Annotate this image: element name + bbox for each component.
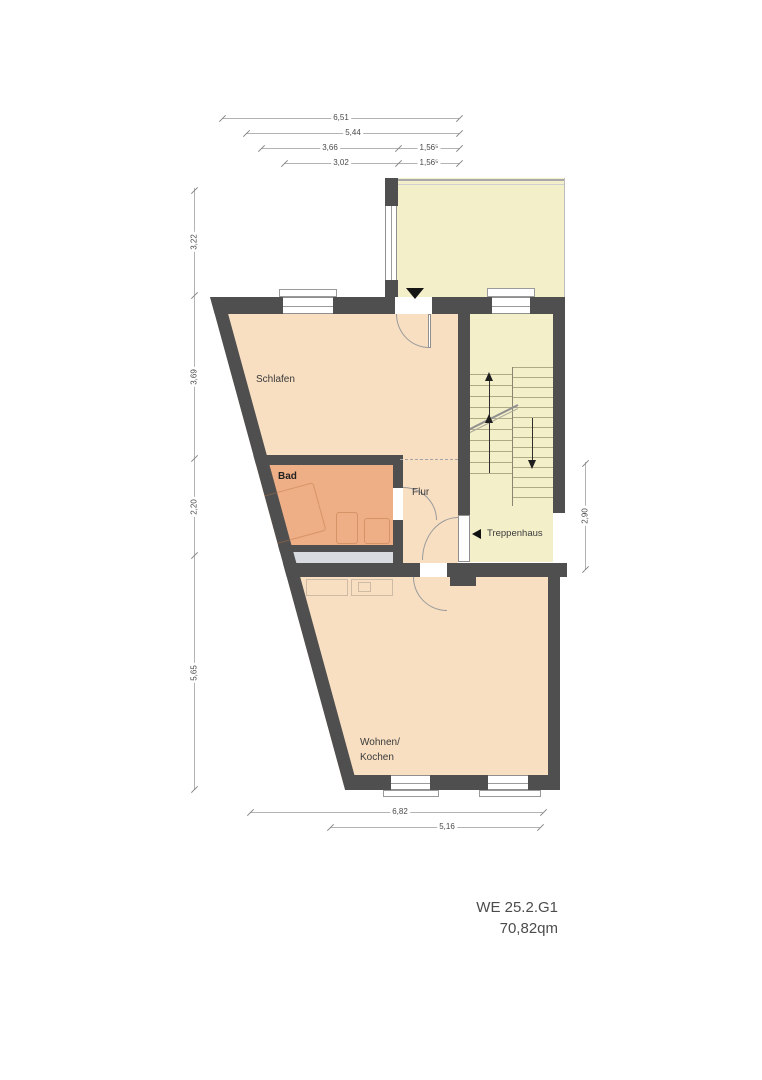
- wall-pier: [450, 577, 476, 586]
- dim-label: 5,16: [437, 822, 457, 831]
- dim-label: 2,20: [190, 497, 199, 517]
- dim-tick: [456, 130, 463, 137]
- apartment-entrance-door-leaf: [458, 515, 470, 562]
- stairwell-window: [492, 297, 530, 314]
- treppenhaus-label: Treppenhaus: [487, 528, 543, 539]
- unit-area: 70,82qm: [400, 918, 558, 939]
- dim-tick: [191, 786, 198, 793]
- window-pane-line: [391, 783, 430, 784]
- wohnen-label-line2: Kochen: [360, 752, 394, 763]
- building: Schlafen Bad Flur Treppenhaus Wohnen/ Ko…: [0, 0, 762, 1080]
- balcony-window: [385, 206, 397, 280]
- bad-door-opening: [393, 488, 403, 520]
- schlafen-window-sill: [279, 289, 337, 297]
- dim-tick: [537, 824, 544, 831]
- wohnen-window: [391, 775, 430, 790]
- dim-tick: [456, 115, 463, 122]
- stair-down-arrow-icon: [528, 460, 536, 469]
- sink-outline: [364, 518, 390, 544]
- wohnen-window-sill: [479, 790, 541, 797]
- wohnen-label-line1: Wohnen/: [360, 737, 400, 748]
- plan-title-block: WE 25.2.G1 70,82qm: [400, 897, 558, 939]
- dim-label: 1,56⁵: [418, 143, 441, 152]
- balcony-entry-arrow-icon: [406, 288, 424, 299]
- stair-up-arrow-icon: [485, 414, 493, 423]
- dim-label: 5,44: [343, 128, 363, 137]
- window-pane-line: [488, 783, 528, 784]
- balcony-wall-segment: [385, 178, 398, 206]
- schlafen-window: [283, 297, 333, 314]
- bad-bottom-wall: [255, 545, 393, 552]
- stairwell-window-sill: [487, 288, 535, 297]
- dim-label: 1,56⁵: [418, 158, 441, 167]
- stairwell-left-wall: [458, 314, 470, 515]
- stair-up-arrow-icon: [485, 372, 493, 381]
- stair-divider-line: [512, 367, 513, 506]
- wohnen-window-sill: [383, 790, 439, 797]
- schlafen-label: Schlafen: [256, 374, 295, 385]
- kitchen-counter-outline: [306, 579, 348, 596]
- kitchen-sink-outline: [358, 582, 371, 592]
- window-pane-line: [283, 306, 333, 307]
- dim-label: 6,82: [390, 807, 410, 816]
- dim-label: 2,90: [581, 506, 590, 526]
- flur-open-boundary-dashed: [400, 459, 458, 460]
- stair-up-line: [489, 379, 490, 473]
- unit-id: WE 25.2.G1: [400, 897, 558, 918]
- dim-tick: [540, 809, 547, 816]
- dim-label: 5,65: [190, 663, 199, 683]
- window-pane-line: [492, 306, 530, 307]
- toilet-outline: [336, 512, 358, 544]
- bad-label: Bad: [278, 471, 297, 482]
- building-edge-line: [564, 178, 565, 298]
- dim-label: 3,69: [190, 367, 199, 387]
- balcony-door-opening: [395, 297, 432, 314]
- dim-label: 3,66: [320, 143, 340, 152]
- dim-label: 3,22: [190, 232, 199, 252]
- floorplan-page: Schlafen Bad Flur Treppenhaus Wohnen/ Ko…: [0, 0, 762, 1080]
- balcony-railing-line: [385, 179, 565, 181]
- dim-label: 6,51: [331, 113, 351, 122]
- window-pane-line: [391, 206, 392, 280]
- dim-line-bottom-2: [330, 827, 540, 828]
- flur-label: Flur: [412, 487, 429, 498]
- entrance-direction-arrow-icon: [472, 529, 481, 539]
- wohnen-right-wall: [548, 577, 560, 777]
- dim-tick: [456, 145, 463, 152]
- dim-tick: [582, 566, 589, 573]
- dim-tick: [456, 160, 463, 167]
- balcony-area: [385, 178, 565, 300]
- dim-line-left: [194, 188, 195, 790]
- wohnen-door-opening: [420, 563, 447, 577]
- dim-label: 3,02: [331, 158, 351, 167]
- stair-down-line: [532, 418, 533, 462]
- main-horizontal-wall: [260, 563, 567, 577]
- shaft-strip: [211, 552, 393, 563]
- stairwell-right-wall: [553, 314, 565, 513]
- wohnen-window: [488, 775, 528, 790]
- balcony-railing-line: [385, 184, 565, 185]
